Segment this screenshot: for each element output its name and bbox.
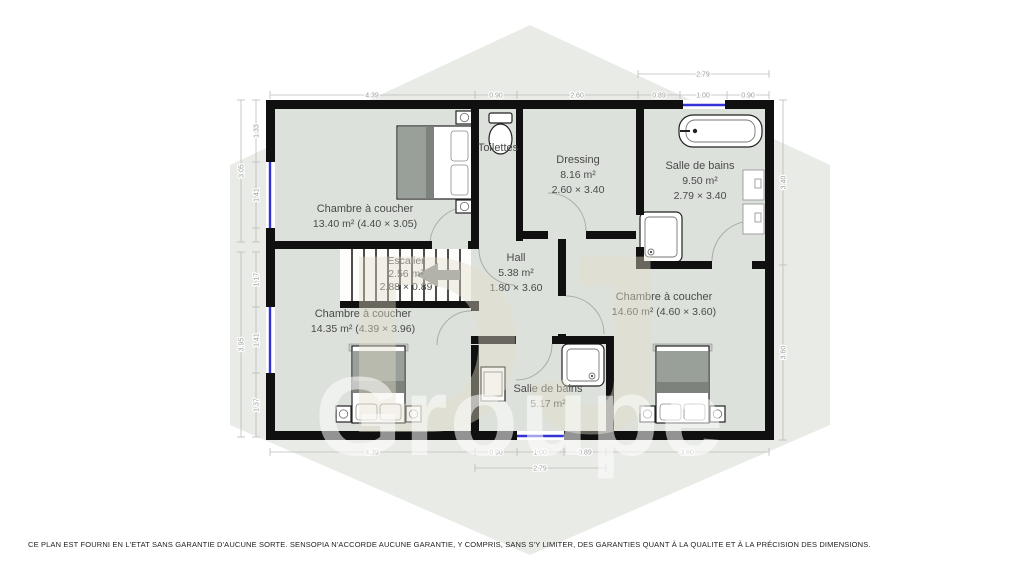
dimension-label: 1.41 <box>254 333 261 347</box>
dimension-label: 1.17 <box>254 273 261 287</box>
dimension-label: 4.39 <box>365 93 379 100</box>
floor-plan-canvas: Chambre à coucher 13.40 m² (4.40 × 3.05)… <box>0 0 1024 576</box>
dimension-label: 2.79 <box>696 72 710 79</box>
dimension-label: 0.90 <box>489 93 503 100</box>
room-label-toilettes-name: Toilettes <box>478 142 519 154</box>
room-label-dressing-size: 2.60 × 3.40 <box>552 184 605 196</box>
room-label-bathroom1-size: 2.79 × 3.40 <box>674 190 727 202</box>
dimension-label: 3.95 <box>239 338 246 352</box>
room-label-dressing-area: 8.16 m² <box>560 169 596 181</box>
dimension-label: 0.90 <box>741 93 755 100</box>
dimension-label: 3.40 <box>781 176 788 190</box>
dimension-label: 1.41 <box>254 188 261 202</box>
bed1-icon <box>397 111 473 213</box>
room-label-bathroom1-name: Salle de bains <box>665 160 735 172</box>
dimension-label: 3.60 <box>781 346 788 360</box>
floor-plan-page: Chambre à coucher 13.40 m² (4.40 × 3.05)… <box>0 0 1024 576</box>
footer-disclaimer: CE PLAN EST FOURNI EN L'ETAT SANS GARANT… <box>28 540 1008 549</box>
dimension-label: 1.37 <box>254 398 261 412</box>
dimension-label: 1.00 <box>696 93 710 100</box>
room-label-bathroom1-area: 9.50 m² <box>682 175 718 187</box>
dimension-label: 0.89 <box>652 93 666 100</box>
dimension-label: 1.33 <box>254 124 261 138</box>
room-label-dressing-name: Dressing <box>556 154 599 166</box>
bathtub-icon <box>679 115 762 147</box>
dimension-label: 3.05 <box>239 164 246 178</box>
watermark-groupe-text: Groupe <box>315 354 725 479</box>
dimension-label: 2.60 <box>570 93 584 100</box>
